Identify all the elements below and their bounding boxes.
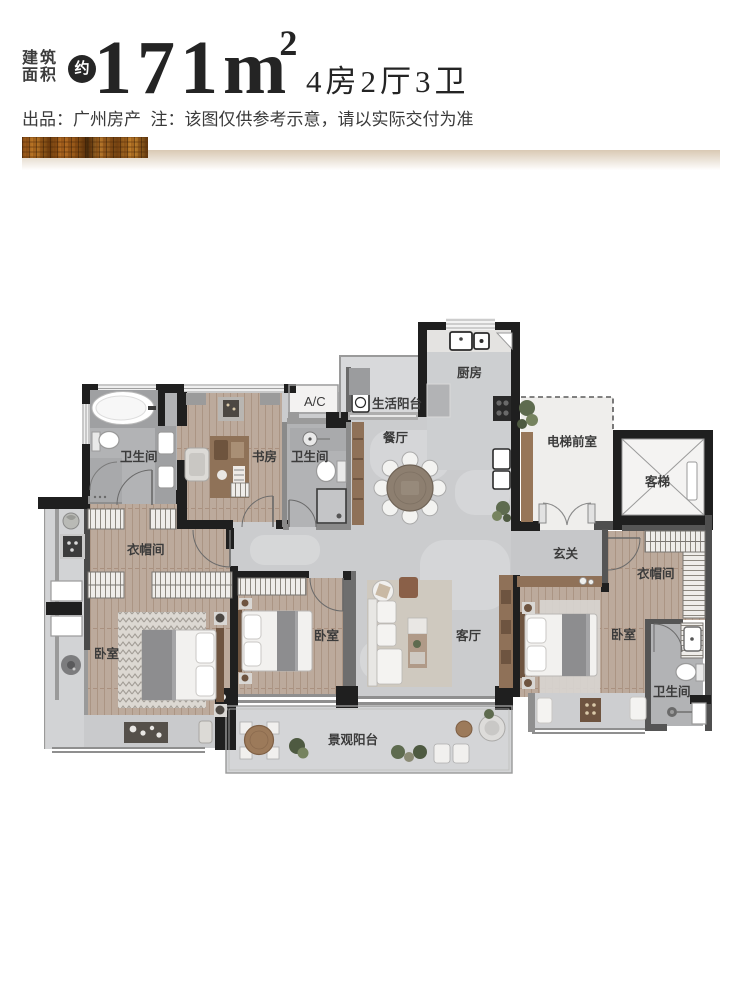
svg-text:玄关: 玄关 (553, 546, 579, 561)
svg-text:生活阳台: 生活阳台 (372, 396, 422, 411)
svg-text:A/C: A/C (304, 394, 326, 409)
svg-text:衣帽间: 衣帽间 (127, 542, 165, 557)
svg-text:卧室: 卧室 (314, 628, 340, 643)
svg-text:卫生间: 卫生间 (653, 684, 691, 699)
svg-text:餐厅: 餐厅 (382, 430, 409, 445)
svg-text:卧室: 卧室 (611, 627, 637, 642)
svg-text:书房: 书房 (252, 449, 277, 464)
svg-text:景观阳台: 景观阳台 (328, 732, 378, 747)
svg-text:卫生间: 卫生间 (291, 449, 329, 464)
svg-text:卫生间: 卫生间 (120, 449, 158, 464)
svg-text:衣帽间: 衣帽间 (637, 566, 675, 581)
svg-text:电梯前室: 电梯前室 (547, 434, 598, 449)
svg-text:客梯: 客梯 (644, 474, 671, 489)
svg-text:卧室: 卧室 (94, 646, 120, 661)
svg-text:客厅: 客厅 (455, 628, 482, 643)
svg-text:厨房: 厨房 (457, 365, 482, 380)
